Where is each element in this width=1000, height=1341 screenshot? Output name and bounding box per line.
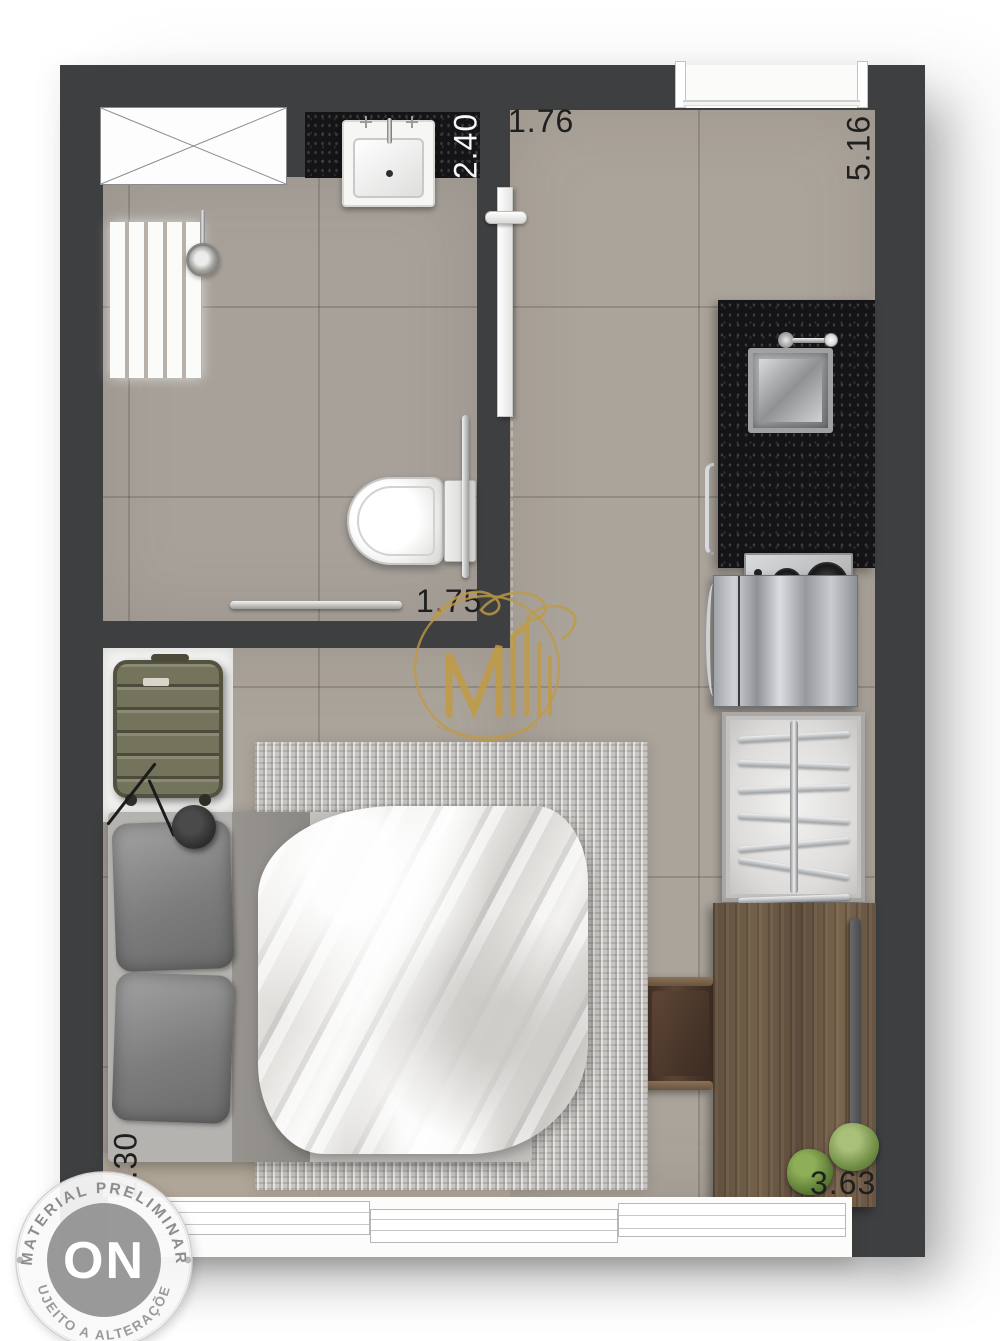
floor-lamp-icon: [172, 805, 216, 849]
suitcase: [113, 660, 223, 798]
shower-head-icon: [186, 243, 220, 277]
closet-rail: [790, 720, 798, 894]
fridge-door-line: [738, 576, 740, 706]
dim-side-length: 5.16: [841, 115, 878, 181]
fridge-handle: [706, 584, 718, 696]
tile-line: [318, 177, 320, 621]
window-rail: [371, 1230, 617, 1231]
dim-window-wall: 3.63: [810, 1165, 876, 1202]
duct-shaft-box: [100, 107, 287, 185]
faucet-spout: [387, 118, 392, 144]
kitchen-faucet-arm: [792, 338, 828, 343]
shower-area: [110, 222, 202, 378]
plant-icon: [829, 1123, 879, 1171]
tap-handle-icon: [406, 116, 418, 128]
kitchen-sink: [748, 348, 833, 433]
door-threshold: [683, 100, 860, 106]
floor-plan: 2.40 1.76 5.16 1.75 2.30 3.63: [60, 65, 925, 1257]
floor-plan-image: 2.40 1.76 5.16 1.75 2.30 3.63: [0, 0, 1000, 1341]
suitcase-label: [143, 678, 169, 686]
stamp-center-text: ON: [63, 1232, 145, 1290]
bed: [108, 812, 532, 1162]
pillow: [111, 820, 234, 972]
window-panel: [618, 1203, 846, 1237]
suitcase-handle: [151, 654, 189, 662]
balcony-window: [108, 1197, 852, 1257]
pillow: [111, 972, 234, 1124]
sink-drain: [386, 170, 393, 177]
wardrobe-inner: [730, 720, 857, 894]
monogram-m: [449, 646, 499, 714]
duvet: [258, 806, 588, 1154]
sink-bowl: [353, 138, 424, 198]
realtor-watermark-logo: [337, 518, 637, 818]
window-rail: [371, 1219, 617, 1220]
tv-monitor: [850, 918, 861, 1158]
dim-bathroom-width: 2.40: [448, 113, 485, 179]
chair-seat: [652, 991, 709, 1076]
wardrobe: [722, 712, 865, 902]
kitchen-counter: [718, 300, 875, 568]
refrigerator: [713, 575, 858, 707]
kitchen-faucet-knob: [824, 333, 838, 347]
chair-armrest: [642, 977, 713, 986]
monogram-tower: [513, 624, 527, 714]
dim-entry: 1.76: [508, 103, 574, 140]
preliminary-stamp: MATERIAL PRELIMINAR SUJEITO A ALTERAÇÕES…: [8, 1168, 200, 1341]
luggage-niche: [103, 648, 233, 822]
desk: [713, 903, 876, 1207]
window-rail: [619, 1228, 845, 1229]
shaft-cross-icon: [101, 108, 286, 184]
cabinet-handle: [705, 463, 714, 555]
bathroom-sink: [342, 120, 435, 207]
chair: [642, 977, 713, 1090]
kitchen-sink-bowl: [759, 359, 822, 422]
entry-door-opening: [675, 65, 868, 108]
sliding-door-handle: [485, 211, 527, 224]
tap-handle-icon: [360, 116, 372, 128]
chair-armrest: [642, 1081, 713, 1090]
window-panel: [370, 1209, 618, 1243]
suitcase-wheel: [199, 794, 211, 806]
window-rail: [619, 1215, 845, 1216]
